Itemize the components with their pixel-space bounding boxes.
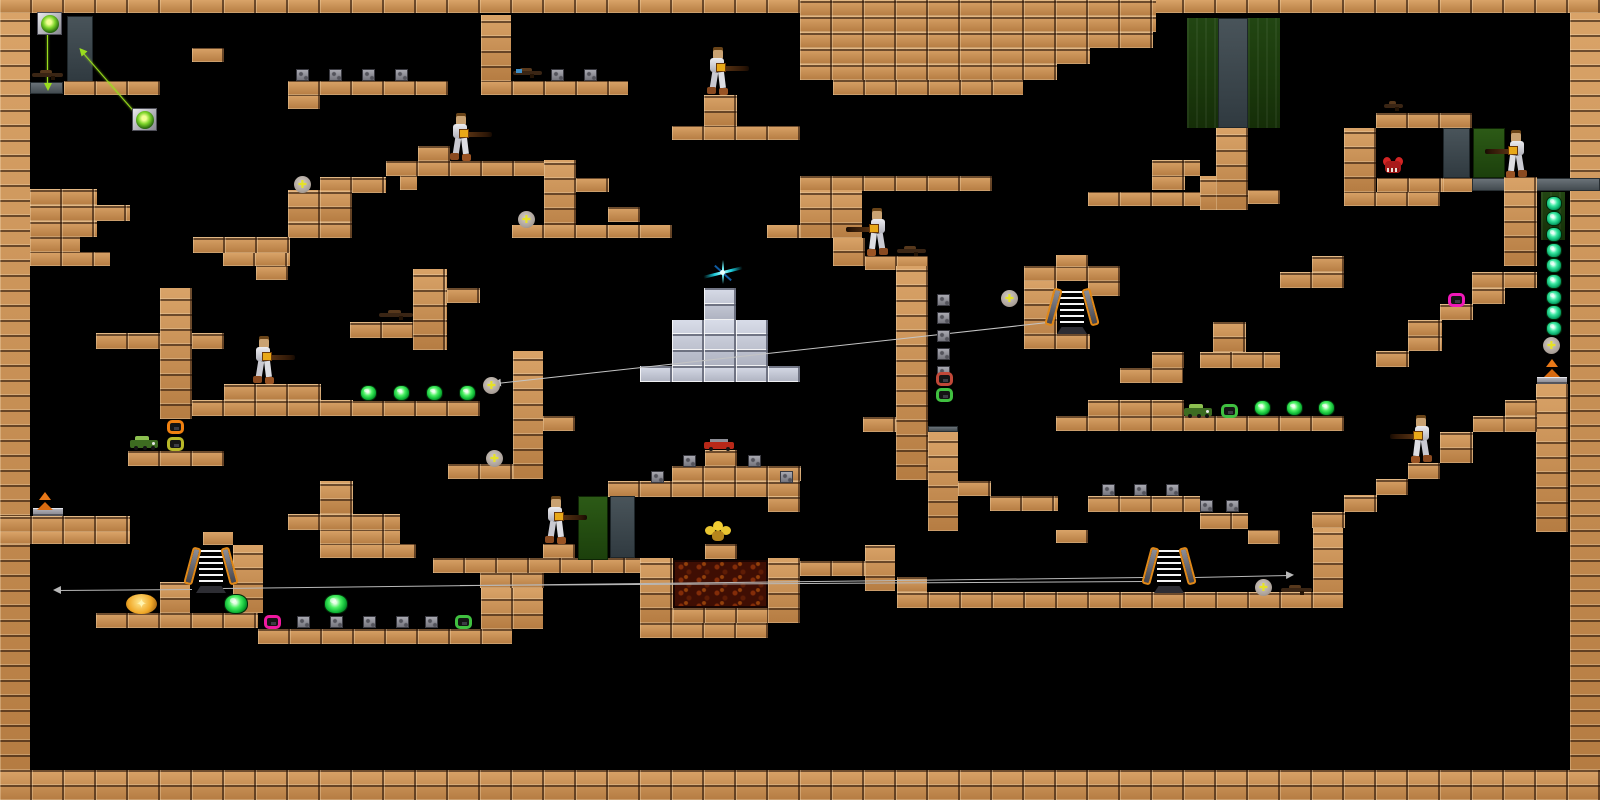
tile-brick: [1376, 113, 1472, 128]
gem-shine: [1550, 261, 1554, 264]
sparkle-effect[interactable]: [703, 260, 743, 286]
ammo-peg[interactable]: [396, 616, 409, 628]
tile-brick: [386, 161, 546, 176]
gem-pickup[interactable]: [1546, 290, 1562, 305]
soldier-boot1: [1518, 170, 1527, 177]
soldier-blade: [561, 515, 587, 520]
tile-brick: [705, 450, 737, 466]
tile-brick: [1056, 255, 1088, 267]
red-vehicle[interactable]: [704, 439, 734, 451]
gem-pickup[interactable]: [393, 385, 410, 401]
soldier-boot2: [1506, 171, 1515, 178]
jump-arrow-top: [1546, 359, 1558, 367]
soldier-boot2: [462, 154, 471, 161]
ring-crate-core: [462, 622, 467, 625]
tile-brick: [1376, 351, 1409, 367]
tile-brick: [320, 401, 480, 416]
laser-orb-core: [136, 111, 154, 129]
gem-shine: [1550, 277, 1554, 280]
soldier-blade: [269, 355, 295, 360]
gun-pickup[interactable]: [379, 310, 413, 320]
wire: [1195, 575, 1290, 578]
gun-grip: [530, 74, 534, 78]
gun-magazine: [516, 69, 522, 73]
escalator-rail-r: [1081, 287, 1100, 326]
jump-arrow-bottom: [1544, 369, 1560, 377]
bee-body: [712, 531, 724, 541]
soldier-leg1: [877, 233, 885, 250]
soldier-boot1: [707, 87, 716, 94]
tile-brick: [288, 81, 448, 95]
tile-door: [578, 496, 608, 560]
gun-grip: [1395, 107, 1399, 111]
tile-brick: [350, 322, 414, 338]
gem-pickup[interactable]: [1546, 321, 1562, 336]
vehicle-light: [152, 442, 155, 445]
tile-brick: [320, 544, 416, 558]
tile-brick: [896, 266, 928, 480]
soldier-leg1: [710, 72, 718, 89]
ammo-peg[interactable]: [425, 616, 438, 628]
soldier-boot1: [450, 153, 459, 160]
ammo-peg[interactable]: [683, 455, 696, 467]
soldier-chest: [554, 512, 564, 521]
gun-body: [1384, 104, 1403, 108]
tile-brick: [1504, 177, 1537, 266]
soldier-enemy[interactable]: [862, 208, 892, 256]
gem-shine: [397, 389, 402, 393]
tile-brick: [160, 288, 192, 419]
ring-crate[interactable]: [936, 372, 953, 386]
tile-brick: [96, 613, 258, 628]
tile-brick: [192, 333, 224, 349]
tile-brick: [1200, 513, 1248, 529]
tile-slate: [610, 496, 635, 558]
ammo-peg[interactable]: [937, 348, 950, 360]
escalator-rungs: [199, 550, 223, 586]
gem-pickup[interactable]: [1546, 258, 1562, 273]
health-pickup[interactable]: ✚: [1255, 579, 1272, 596]
jump-pad-arrows-icon[interactable]: [1543, 357, 1561, 377]
gem-pickup[interactable]: [1546, 243, 1562, 258]
soldier-boot1: [545, 536, 554, 543]
health-pickup[interactable]: ✚: [1543, 337, 1560, 354]
tile-steel: [640, 366, 800, 382]
gem-pickup[interactable]: [324, 594, 348, 614]
vehicle-light: [1206, 410, 1209, 413]
tile-brick: [413, 269, 447, 350]
soldier-leg2: [718, 72, 726, 89]
ring-crate[interactable]: [167, 420, 184, 434]
soldier-boot2: [557, 537, 566, 544]
vehicle-wheel: [1197, 414, 1201, 418]
tile-brick: [640, 558, 673, 623]
tile-brick: [513, 351, 543, 479]
tile-brick: [543, 416, 575, 431]
gem-shine: [1550, 293, 1554, 296]
tile-brick: [400, 175, 417, 190]
tile-brick: [30, 237, 80, 252]
tile-brick: [800, 48, 1090, 64]
tile-brick: [288, 95, 320, 109]
escalator-base: [1057, 327, 1087, 334]
soldier-enemy[interactable]: [1406, 415, 1436, 463]
soldier-enemy[interactable]: [446, 113, 476, 161]
tile-green: [1248, 18, 1280, 128]
tile-brick: [1088, 400, 1184, 416]
tile-brick: [30, 189, 97, 205]
soldier-boot1: [1423, 455, 1432, 462]
ammo-peg[interactable]: [551, 69, 564, 81]
tile-brick: [800, 561, 865, 576]
soldier-boot2: [1411, 456, 1420, 463]
tile-brick: [1056, 416, 1344, 431]
tile-brick: [640, 623, 768, 638]
soldier-boot1: [253, 376, 262, 383]
tile-brick: [0, 13, 30, 770]
escalator-device[interactable]: [1143, 545, 1195, 593]
ammo-peg[interactable]: [363, 616, 376, 628]
gem-pickup[interactable]: [1286, 400, 1303, 416]
tile-brick: [192, 48, 224, 62]
tile-brick: [672, 126, 800, 140]
tile-brick: [1570, 13, 1600, 770]
soldier-enemy[interactable]: [703, 47, 733, 95]
tile-brick: [608, 481, 800, 497]
health-pickup[interactable]: ✚: [294, 176, 311, 193]
tile-brick: [433, 558, 640, 573]
ammo-peg[interactable]: [1102, 484, 1115, 496]
gun-pickup[interactable]: [1281, 585, 1312, 593]
tile-brick: [1152, 176, 1185, 190]
tile-brick: [1248, 530, 1280, 544]
gem-pickup[interactable]: [459, 385, 476, 401]
tile-brick: [1120, 368, 1183, 383]
tile-brick: [800, 16, 1156, 32]
soldier-blade: [723, 66, 749, 71]
laser-orb-core: [41, 15, 59, 33]
level-canvas: ✚✚✚✚✚✚✚✦: [0, 0, 1600, 800]
soldier-boot2: [265, 377, 274, 384]
ammo-peg[interactable]: [1166, 484, 1179, 496]
gun-body: [1281, 588, 1312, 592]
tile-pad: [1537, 377, 1567, 384]
tile-brick: [1213, 322, 1246, 352]
tile-brick: [958, 481, 991, 496]
tile-brick: [1377, 178, 1443, 192]
tile-brick: [1408, 336, 1442, 351]
tile-brick: [1056, 530, 1088, 543]
soldier-blade: [466, 132, 492, 137]
gun-pickup[interactable]: [897, 246, 926, 256]
tile-brick: [1248, 190, 1280, 204]
gem-pickup[interactable]: [1546, 227, 1562, 242]
ammo-peg[interactable]: [937, 294, 950, 306]
tile-brick: [203, 532, 233, 545]
tile-brick: [1440, 432, 1473, 463]
gem-shine: [1290, 404, 1295, 408]
ring-crate-core: [1228, 411, 1233, 414]
gem-pickup[interactable]: [426, 385, 443, 401]
gem-shine: [330, 598, 337, 603]
escalator-rungs: [1157, 550, 1181, 586]
health-pickup[interactable]: ✚: [518, 211, 535, 228]
imp-enemy[interactable]: [1383, 157, 1403, 176]
tile-brick: [1088, 496, 1200, 512]
gem-shine: [1550, 324, 1554, 327]
tile-brick: [481, 588, 543, 629]
ring-crate-core: [174, 427, 179, 430]
tile-slate: [1218, 18, 1248, 128]
soldier-leg2: [264, 361, 272, 378]
tile-brick: [673, 608, 768, 623]
escalator-rungs: [1060, 291, 1084, 327]
sparkle-ray: [720, 270, 725, 275]
gem-pickup[interactable]: [1546, 196, 1562, 211]
vehicle-wheel: [143, 446, 147, 450]
tile-brick: [833, 238, 865, 266]
bee-creature[interactable]: [705, 520, 731, 543]
gem-shine: [1550, 214, 1554, 217]
ammo-peg[interactable]: [1226, 500, 1239, 512]
tile-brick: [481, 15, 511, 81]
ammo-peg[interactable]: [329, 69, 342, 81]
tile-brick: [256, 266, 288, 280]
soldier-enemy[interactable]: [541, 496, 571, 544]
soldier-enemy[interactable]: [249, 336, 279, 384]
soldier-boot1: [879, 248, 888, 255]
bee-head: [713, 521, 723, 531]
tile-brick: [1536, 384, 1568, 532]
ammo-peg[interactable]: [780, 471, 793, 483]
tile-brick: [576, 178, 609, 192]
tile-brick: [0, 770, 1600, 800]
tile-brick: [288, 190, 352, 222]
tile-brick: [990, 496, 1058, 511]
tile-brick: [608, 207, 640, 222]
tile-brick: [30, 205, 130, 221]
tile-brick: [258, 629, 512, 644]
gem-pickup[interactable]: [1318, 400, 1335, 416]
health-pickup[interactable]: ✚: [483, 377, 500, 394]
tile-brick: [1024, 334, 1090, 349]
gem-pickup[interactable]: [1254, 400, 1271, 416]
tile-brick: [1472, 272, 1537, 288]
tile-brick: [767, 225, 800, 238]
ammo-peg[interactable]: [297, 616, 310, 628]
tile-brick: [1200, 352, 1280, 368]
tile-brick: [447, 288, 480, 303]
tile-brick: [928, 432, 958, 531]
ammo-peg[interactable]: [584, 69, 597, 81]
soldier-leg2: [1413, 440, 1421, 457]
vehicle-wheel: [1188, 414, 1192, 418]
gem-shine: [1550, 230, 1554, 233]
gem-shine: [463, 389, 468, 393]
soldier-boot2: [867, 249, 876, 256]
gem-shine: [1550, 308, 1554, 311]
gun-pickup[interactable]: [513, 68, 542, 79]
gem-pickup[interactable]: [224, 594, 248, 614]
jump-arrow-top: [39, 492, 51, 500]
tile-brick: [800, 0, 1156, 16]
jump-pad-arrows-icon[interactable]: [36, 490, 54, 510]
gem-shine: [1258, 404, 1263, 408]
tile-brick: [1024, 266, 1120, 281]
tile-brick: [897, 592, 1343, 608]
gem-shine: [430, 389, 435, 393]
tile-brick: [320, 530, 400, 544]
tile-brick: [481, 81, 628, 95]
soldier-leg1: [256, 361, 264, 378]
soldier-leg2: [556, 521, 564, 538]
tile-brick: [1344, 192, 1440, 206]
vehicle-wheel: [134, 446, 138, 450]
gun-pickup[interactable]: [32, 70, 63, 80]
gun-pickup[interactable]: [1384, 101, 1403, 113]
ring-crate[interactable]: [455, 615, 472, 629]
gem-shine: [230, 598, 237, 603]
tile-brick: [1152, 160, 1200, 176]
tile-brick: [288, 514, 400, 530]
green-vehicle[interactable]: [130, 436, 158, 450]
vehicle-wheel: [1205, 414, 1209, 418]
soldier-chest: [262, 352, 272, 361]
tile-brick: [224, 384, 321, 400]
health-pickup[interactable]: ✚: [1001, 290, 1018, 307]
tile-brick: [768, 558, 800, 623]
soldier-chest: [459, 129, 469, 138]
escalator-rail-r: [220, 546, 239, 585]
tile-brick: [1443, 178, 1472, 192]
gem-pickup[interactable]: [1546, 274, 1562, 289]
gun-grip: [399, 316, 403, 320]
gun-grip: [51, 76, 55, 80]
escalator-device[interactable]: [1046, 286, 1098, 334]
soldier-leg1: [453, 138, 461, 155]
tile-brick: [1312, 256, 1344, 272]
gun-grip: [1300, 591, 1304, 595]
tile-brick: [1088, 192, 1200, 206]
gem-pickup[interactable]: [1546, 211, 1562, 226]
ring-crate[interactable]: [1221, 404, 1238, 418]
ring-crate-core: [271, 622, 276, 625]
escalator-rail-r: [1178, 546, 1197, 585]
gem-pickup[interactable]: [1546, 305, 1562, 320]
soldier-enemy[interactable]: [1501, 130, 1531, 178]
ammo-peg[interactable]: [1134, 484, 1147, 496]
ammo-peg[interactable]: [296, 69, 309, 81]
tile-brick: [1473, 416, 1537, 432]
jump-arrow-bottom: [37, 502, 53, 510]
soldier-leg2: [1508, 155, 1516, 172]
tile-brick: [543, 544, 575, 558]
gem-shine: [1322, 404, 1327, 408]
gold-coin[interactable]: ✦: [126, 594, 157, 614]
soldier-leg1: [1421, 440, 1429, 457]
ring-crate[interactable]: [167, 437, 184, 451]
tile-brick: [1408, 320, 1442, 336]
tile-brick: [1200, 176, 1216, 210]
tile-brick: [0, 532, 130, 544]
tile-brick: [1344, 495, 1377, 512]
tile-brick: [30, 252, 110, 266]
tile-brick: [1505, 400, 1537, 416]
tile-brick: [800, 176, 992, 191]
ammo-peg[interactable]: [395, 69, 408, 81]
green-vehicle[interactable]: [1184, 404, 1212, 418]
tile-brick: [1376, 479, 1408, 495]
tile-brick: [705, 544, 737, 559]
ammo-peg[interactable]: [1200, 500, 1213, 512]
ring-crate-core: [1455, 300, 1460, 303]
gem-pickup[interactable]: [360, 385, 377, 401]
soldier-leg2: [461, 138, 469, 155]
gem-shine: [364, 389, 369, 393]
laser-orb-device[interactable]: [37, 12, 62, 35]
tile-slate: [1443, 128, 1470, 178]
gun-grip: [914, 252, 918, 256]
tile-brick: [704, 95, 737, 126]
escalator-base: [196, 586, 226, 593]
vehicle-wheel: [709, 447, 713, 451]
tile-brick: [1408, 463, 1440, 479]
ring-crate[interactable]: [264, 615, 281, 629]
tile-brick: [288, 222, 352, 238]
ammo-peg[interactable]: [362, 69, 375, 81]
vehicle-wheel: [726, 447, 730, 451]
ring-crate-core: [943, 395, 948, 398]
tile-brick: [1344, 128, 1376, 192]
ring-crate-core: [943, 379, 948, 382]
wire-arrowhead-icon: [1286, 571, 1294, 579]
escalator-device[interactable]: [185, 545, 237, 593]
tile-brick: [800, 64, 1057, 80]
ring-crate[interactable]: [1448, 293, 1465, 307]
tile-brick: [1152, 352, 1184, 368]
ammo-peg[interactable]: [748, 455, 761, 467]
soldier-leg1: [1516, 155, 1524, 172]
soldier-leg2: [869, 233, 877, 250]
ammo-peg[interactable]: [937, 330, 950, 342]
escalator-base: [1154, 586, 1184, 593]
tile-brick: [865, 545, 895, 591]
soldier-boot2: [719, 88, 728, 95]
tile-brick: [1312, 512, 1345, 528]
wire-arrowhead-icon: [53, 586, 61, 594]
laser-orb-device[interactable]: [132, 108, 157, 131]
tile-brick: [512, 225, 672, 238]
tile-brick: [96, 333, 160, 349]
health-pickup[interactable]: ✚: [486, 450, 503, 467]
tile-brick: [223, 253, 290, 266]
soldier-leg1: [548, 521, 556, 538]
tile-brick: [448, 464, 513, 479]
tile-brick: [863, 417, 896, 432]
ammo-peg[interactable]: [651, 471, 664, 483]
tile-brick: [30, 221, 97, 237]
tile-brick: [128, 451, 224, 466]
tile-brick: [1280, 272, 1344, 288]
ring-crate[interactable]: [936, 388, 953, 402]
ring-crate-core: [174, 444, 179, 447]
tile-brick: [768, 496, 800, 512]
tile-brick: [1216, 128, 1248, 210]
tile-brick: [833, 80, 1023, 95]
ammo-peg[interactable]: [330, 616, 343, 628]
gem-shine: [1550, 246, 1554, 249]
ammo-peg[interactable]: [937, 312, 950, 324]
